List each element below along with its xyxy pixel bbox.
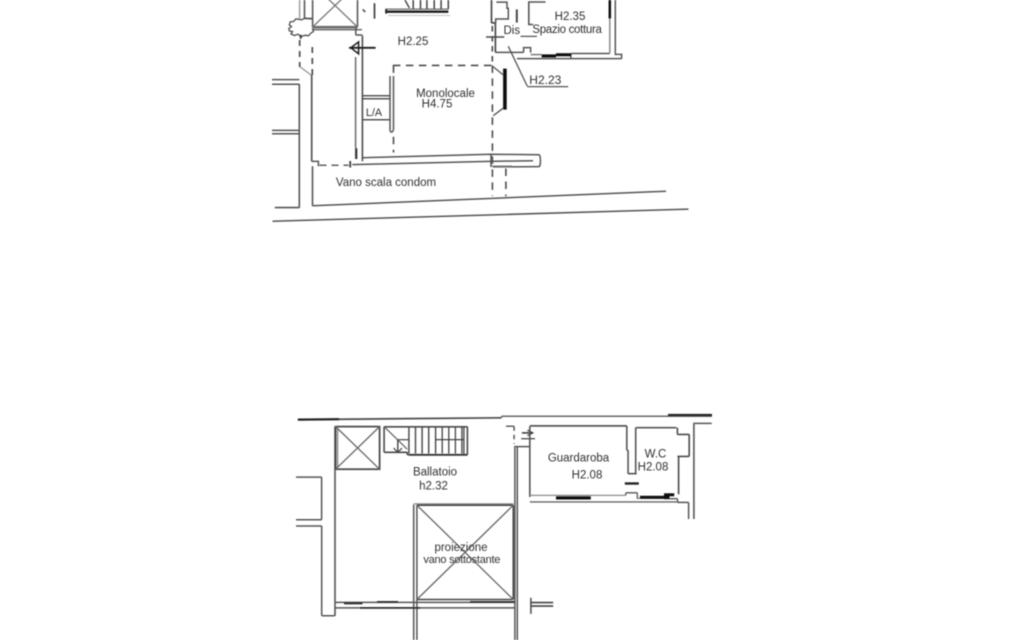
svg-text:H2.08: H2.08 bbox=[572, 470, 603, 482]
svg-text:h2.32: h2.32 bbox=[419, 480, 448, 492]
svg-text:Spazio cottura: Spazio cottura bbox=[532, 24, 602, 36]
svg-text:vano sottostante: vano sottostante bbox=[423, 554, 500, 566]
svg-text:H2.08: H2.08 bbox=[638, 462, 669, 474]
svg-text:H2.25: H2.25 bbox=[398, 36, 429, 48]
svg-text:Vano scala condom: Vano scala condom bbox=[336, 177, 436, 189]
svg-text:Guardaroba: Guardaroba bbox=[548, 453, 610, 465]
svg-text:Dis: Dis bbox=[504, 25, 521, 37]
svg-text:H2.35: H2.35 bbox=[555, 11, 586, 23]
svg-text:H4.75: H4.75 bbox=[422, 99, 453, 111]
svg-text:L/A: L/A bbox=[366, 107, 383, 119]
svg-text:W.C: W.C bbox=[645, 449, 667, 461]
svg-text:Ballatoio: Ballatoio bbox=[413, 466, 457, 478]
svg-text:H2.23: H2.23 bbox=[529, 73, 561, 87]
svg-text:proiezione: proiezione bbox=[434, 542, 487, 554]
